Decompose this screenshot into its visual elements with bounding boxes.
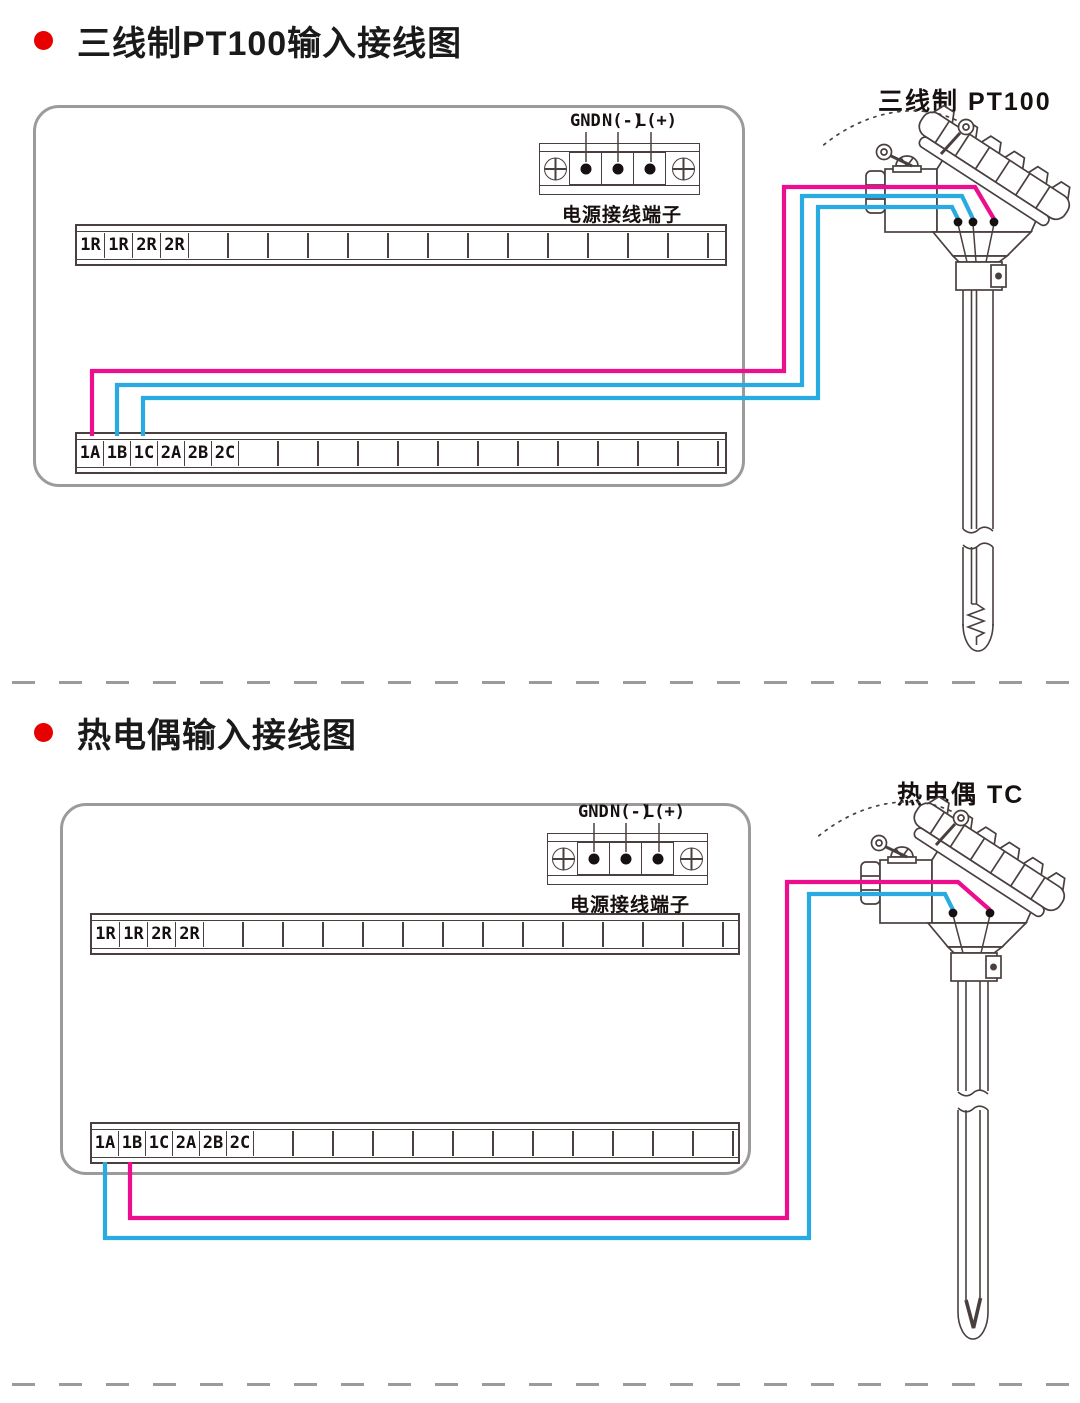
terminal-cell: 1R <box>105 233 133 258</box>
terminal-cell: 2C <box>227 1131 254 1156</box>
empty-terminal-cells <box>239 441 725 466</box>
relay-strip-1: 1R 1R 2R 2R <box>75 224 727 266</box>
power-caption-1: 电源接线端子 <box>562 200 682 227</box>
section2-title-row: 热电偶输入接线图 <box>34 708 357 757</box>
empty-terminal-cells <box>204 922 738 947</box>
power-label-gnd: GND <box>570 111 601 131</box>
terminal-cell: 1B <box>104 441 131 466</box>
terminal-cell: 1R <box>120 922 148 947</box>
bullet-icon <box>34 31 53 50</box>
power-label-l: L(+) <box>644 802 685 822</box>
screw-icon <box>552 848 575 871</box>
pt100-sensor-label: 三线制 PT100 <box>878 82 1052 118</box>
wiring-diagram-page: 三线制PT100输入接线图 GND N(-) L(+) 电源接线端子 1R 1R… <box>0 0 1080 1403</box>
power-cell-l <box>642 843 673 874</box>
screw-icon <box>544 158 567 181</box>
power-terminal-block-2 <box>547 833 708 885</box>
power-cell-gnd <box>570 153 602 184</box>
bullet-icon <box>34 723 53 742</box>
section2-title: 热电偶输入接线图 <box>77 708 357 757</box>
terminal-cell: 2R <box>148 922 176 947</box>
terminal-cell: 2A <box>158 441 185 466</box>
terminal-cell: 1C <box>146 1131 173 1156</box>
power-label-l: L(+) <box>636 111 677 131</box>
tc-sensor-head <box>815 791 1074 981</box>
input-strip-cells: 1A 1B 1C 2A 2B 2C <box>77 441 725 466</box>
terminal-dot <box>620 853 631 864</box>
terminal-cell: 2B <box>185 441 212 466</box>
power-cell-gnd <box>578 843 610 874</box>
power-terminal-block-1 <box>539 143 700 195</box>
terminal-cell: 1A <box>77 441 104 466</box>
terminal-cell: 2R <box>133 233 161 258</box>
terminal-dot <box>652 853 663 864</box>
section1-title-row: 三线制PT100输入接线图 <box>34 16 462 65</box>
screw-icon <box>672 158 695 181</box>
power-cell-l <box>634 153 665 184</box>
section1-title: 三线制PT100输入接线图 <box>77 16 462 65</box>
terminal-cell: 1R <box>77 233 105 258</box>
terminal-dot <box>644 163 655 174</box>
input-strip-2: 1A 1B 1C 2A 2B 2C <box>90 1122 740 1164</box>
rtd-element-icon <box>968 604 984 645</box>
terminal-cell: 1R <box>92 922 120 947</box>
tc-probe <box>956 981 990 1339</box>
sensor-terminal-dots <box>949 218 999 918</box>
pt100-probe <box>961 290 995 651</box>
power-terminal-cells <box>569 152 666 185</box>
terminal-cell: 2A <box>173 1131 200 1156</box>
internal-leads <box>953 224 994 953</box>
power-cell-n <box>610 843 642 874</box>
terminal-cell: 2R <box>161 233 189 258</box>
tc-sensor-label: 热电偶 TC <box>897 775 1024 811</box>
relay-strip-2: 1R 1R 2R 2R <box>90 913 740 955</box>
power-cell-n <box>602 153 634 184</box>
relay-strip-cells: 1R 1R 2R 2R <box>77 233 725 258</box>
bottom-divider <box>12 1383 1070 1386</box>
screw-icon <box>680 848 703 871</box>
terminal-cell: 2C <box>212 441 239 466</box>
terminal-cell: 2R <box>176 922 204 947</box>
terminal-dot <box>580 163 591 174</box>
section-divider <box>12 681 1070 684</box>
terminal-cell: 1B <box>119 1131 146 1156</box>
terminal-dot <box>612 163 623 174</box>
pt100-sensor-head <box>820 100 1079 290</box>
empty-terminal-cells <box>254 1131 738 1156</box>
tc-junction-icon <box>966 1298 981 1328</box>
power-label-gnd: GND <box>578 802 609 822</box>
terminal-cell: 1A <box>92 1131 119 1156</box>
terminal-dot <box>588 853 599 864</box>
terminal-cell: 1C <box>131 441 158 466</box>
terminal-cell: 2B <box>200 1131 227 1156</box>
input-strip-1: 1A 1B 1C 2A 2B 2C <box>75 432 727 474</box>
relay-strip-cells: 1R 1R 2R 2R <box>92 922 738 947</box>
empty-terminal-cells <box>189 233 725 258</box>
input-strip-cells: 1A 1B 1C 2A 2B 2C <box>92 1131 738 1156</box>
power-terminal-cells <box>577 842 674 875</box>
